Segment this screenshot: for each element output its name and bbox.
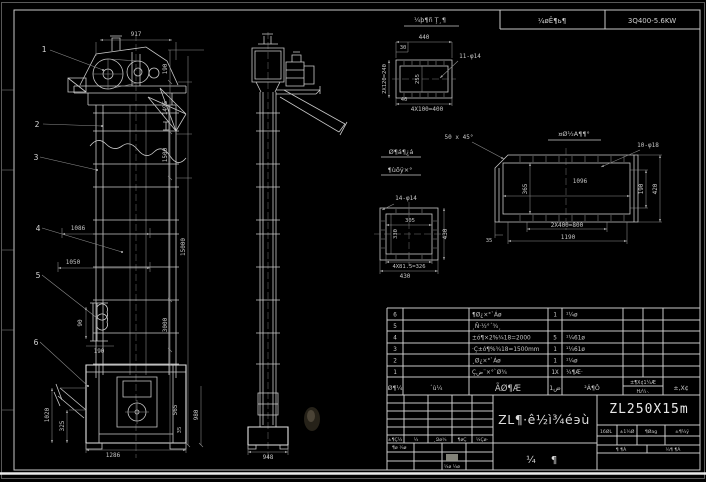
dim-40: 40 (401, 97, 408, 103)
dim-1495: 1495 (162, 100, 169, 115)
balloon-4: 4 (36, 224, 41, 233)
scale-left: ¶ ¶Á (616, 446, 627, 453)
dim-325: 325 (59, 420, 66, 431)
bom-row-no: 6 (393, 312, 397, 319)
dim-365: 365 (522, 183, 529, 194)
sig-header-1: ±¶Ç¼ (388, 437, 403, 443)
sig-row-2: ¼ø ¼ø (444, 464, 460, 470)
dim-1286: 1286 (106, 452, 121, 459)
page-count-right: ¶ (551, 455, 557, 466)
signature-smudge (446, 454, 458, 461)
dim-420: 420 (652, 183, 659, 194)
bom-header-dwg: ´ù¼ (429, 384, 442, 392)
cad-drawing-sheet: ¼øÊ¶ь¶ 3Q400-5.6KW 917 190 1495 1500 300… (0, 0, 706, 482)
bom-row-name: ¸Ø¿×°`Áø (472, 358, 501, 365)
bom-row-no: 2 (393, 358, 397, 365)
scale-right: ¼¶ ¶Á (666, 446, 682, 453)
page-count-left: ¼ (526, 454, 536, 466)
bom-header-name: ÃØ¶Æ (495, 383, 521, 394)
bom-row-qty: 1 (553, 312, 557, 319)
sig-header-5: ¼Çø· (476, 437, 488, 443)
dim-330: 330 (393, 229, 399, 239)
sig-header-4: ¶øÇ (458, 437, 467, 443)
side-elevation-view: 948 (248, 32, 347, 461)
detail-c-square-flange: Ø¶á¶¿á ¶ùõÿ×° 14-φ14 305 330 430 4X81.5=… (374, 148, 449, 280)
bom-row-material: ¹¼61ø (566, 346, 585, 353)
bom-row-no: 4 (393, 335, 397, 342)
dim-3000: 3000 (162, 317, 169, 332)
bom-header-total: Ƕ¼·. (636, 389, 649, 395)
spec-cell-3: ¶Øag (645, 428, 657, 435)
spec-cell-2: ±1¼Ø (620, 428, 635, 435)
screen-smudge (304, 407, 320, 431)
dim-440: 440 (419, 34, 430, 41)
detail-b-title: ¤Ø½A¶¶° (558, 130, 590, 138)
bom-row-material: ¹¼61ø (566, 335, 585, 342)
dim-430-bottom: 430 (400, 273, 411, 280)
front-elevation-view (54, 34, 186, 458)
model-number: ZL250X15m (609, 402, 688, 417)
bom-header-weight: ±¶X¢1¼Æ (630, 380, 656, 386)
bom-header-qty: ض1 (549, 385, 561, 392)
dim-15000: 15000 (180, 238, 187, 256)
bom-row-qty: 1X (551, 369, 559, 376)
dim-4x81: 4X81.5=326 (392, 264, 425, 270)
balloon-6: 6 (34, 338, 39, 347)
dim-1096: 1096 (573, 178, 588, 185)
chamfer-label: 50 x 45° (445, 134, 474, 141)
dim-35-b: 35 (486, 238, 493, 244)
title-block: ±¶Ç¼ ¼ ¸Ձø¾ ¶øÇ ¼Çø· ¶ø ¼ø ¼ø ¼ø ZL¶·ê½ì… (387, 395, 700, 470)
dim-190-bracket: 190 (94, 348, 105, 355)
bom-row-name: ¸Ñ·½°´¾¸ (472, 323, 501, 330)
bom-row-no: 1 (393, 369, 397, 376)
dim-90: 90 (77, 319, 84, 327)
sig-header-3: ¸Ձø¾ (433, 437, 447, 443)
spec-cell-4: ±¶¼ÿ (675, 429, 689, 435)
bom-table: 6 ¶Ø¿×°`Áø 1 ¹¼ø 5 ¸Ñ·½°´¾¸ 4 ±ó¶×2%¾18=… (387, 308, 700, 470)
dim-948: 948 (263, 454, 274, 461)
sig-header-2: ¼ (414, 437, 419, 443)
zone-ticks (2, 90, 14, 410)
dim-430-right: 430 (442, 228, 449, 239)
detail-b-casing-section: ¤Ø½A¶¶° 50 x 45° 1096 365 10-φ18 190 420… (445, 130, 662, 244)
detail-c-title-1: Ø¶á¶¿á (389, 148, 414, 156)
dim-1050: 1050 (66, 259, 81, 266)
bom-row-qty: 5 (553, 335, 557, 342)
drawing-canvas: ¼øÊ¶ь¶ 3Q400-5.6KW 917 190 1495 1500 300… (0, 0, 706, 482)
bom-row-material: ¹¼ø (566, 312, 578, 319)
drawing-title: ZL¶·ê½ì¾é϶ù (498, 412, 590, 427)
balloon-3: 3 (34, 153, 39, 162)
bom-header-remark: ±,X¢ (673, 385, 688, 392)
dim-565: 565 (172, 404, 179, 415)
bom-row-name: Çض¨×°`Ø¾ (472, 369, 507, 376)
detail-a-title: ¼þ¶ñ Ţ¸¶ (414, 16, 446, 24)
bom-header-no: Ø¶¼ (388, 384, 403, 392)
dim-30: 30 (400, 45, 407, 51)
dim-255: 255 (415, 74, 421, 84)
dim-305: 305 (405, 218, 415, 224)
balloon-5: 5 (36, 271, 41, 280)
bom-row-name: ·Ç±ó¶%¾18=1500mm (472, 346, 540, 353)
dim-1500: 1500 (162, 147, 169, 162)
balloon-2: 2 (35, 120, 40, 129)
item-balloons: 1 2 3 4 5 6 (34, 45, 123, 387)
detail-a-flange-plate: ¼þ¶ñ Ţ¸¶ 440 30 11-φ14 2X120=240 255 40 … (382, 16, 481, 113)
dim-1086: 1086 (71, 225, 86, 232)
sheet-header-cell-1: ¼øÊ¶ь¶ (538, 16, 567, 25)
spec-cell-1: 16ØL (600, 428, 612, 435)
bom-row-no: 5 (393, 323, 397, 330)
dim-35: 35 (177, 427, 183, 434)
dim-190-top: 190 (162, 63, 169, 74)
holes-label-11xd14: 11-φ14 (459, 53, 481, 60)
dim-2x400: 2X400=800 (551, 222, 584, 229)
sig-row-1: ¶ø ¼ø (392, 445, 407, 451)
bom-row-name: ¶Ø¿×°`Áø (472, 312, 502, 319)
bom-row-qty: 1 (553, 346, 557, 353)
detail-c-title-2: ¶ùõÿ×° (388, 166, 413, 174)
sheet-header-cell-2: 3Q400-5.6KW (628, 17, 676, 25)
bom-row-material: ¼¶Æ· (566, 370, 583, 376)
dim-917: 917 (131, 31, 142, 38)
holes-label-10xd18: 10-φ18 (637, 142, 659, 149)
dim-1190: 1190 (561, 234, 576, 241)
dim-190-right: 190 (638, 183, 645, 194)
bom-row-qty: 1 (553, 358, 557, 365)
dim-1020: 1020 (44, 407, 51, 422)
holes-label-14xd14: 14-φ14 (395, 195, 417, 202)
dim-4x100: 4X100=400 (411, 106, 444, 113)
dim-980: 980 (193, 409, 200, 420)
bom-header-material: ²Á¶Ô (584, 383, 600, 392)
dim-2x120: 2X120=240 (382, 64, 388, 94)
balloon-1: 1 (42, 45, 47, 54)
bom-row-material: ¹¼ø (566, 358, 578, 365)
bom-row-no: 3 (393, 346, 397, 353)
bom-row-name: ±ó¶×2%¾18=2000 (472, 335, 531, 342)
